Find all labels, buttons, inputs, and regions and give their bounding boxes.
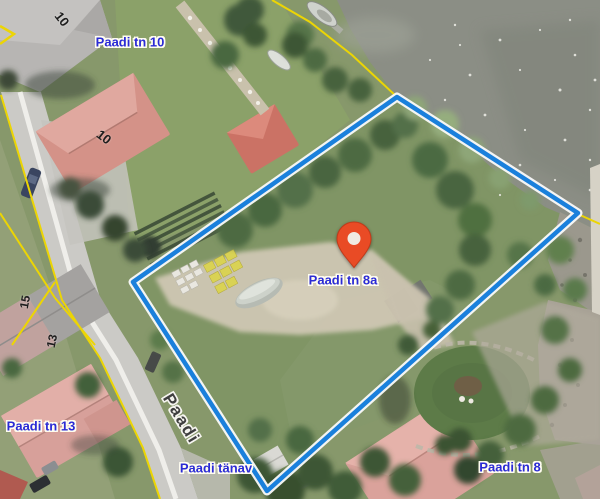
aerial-imagery: [0, 0, 600, 499]
location-marker-icon[interactable]: [335, 221, 373, 269]
map-viewport[interactable]: Paadi tn 10 Paadi tn 8a Paadi tn 13 Paad…: [0, 0, 600, 499]
